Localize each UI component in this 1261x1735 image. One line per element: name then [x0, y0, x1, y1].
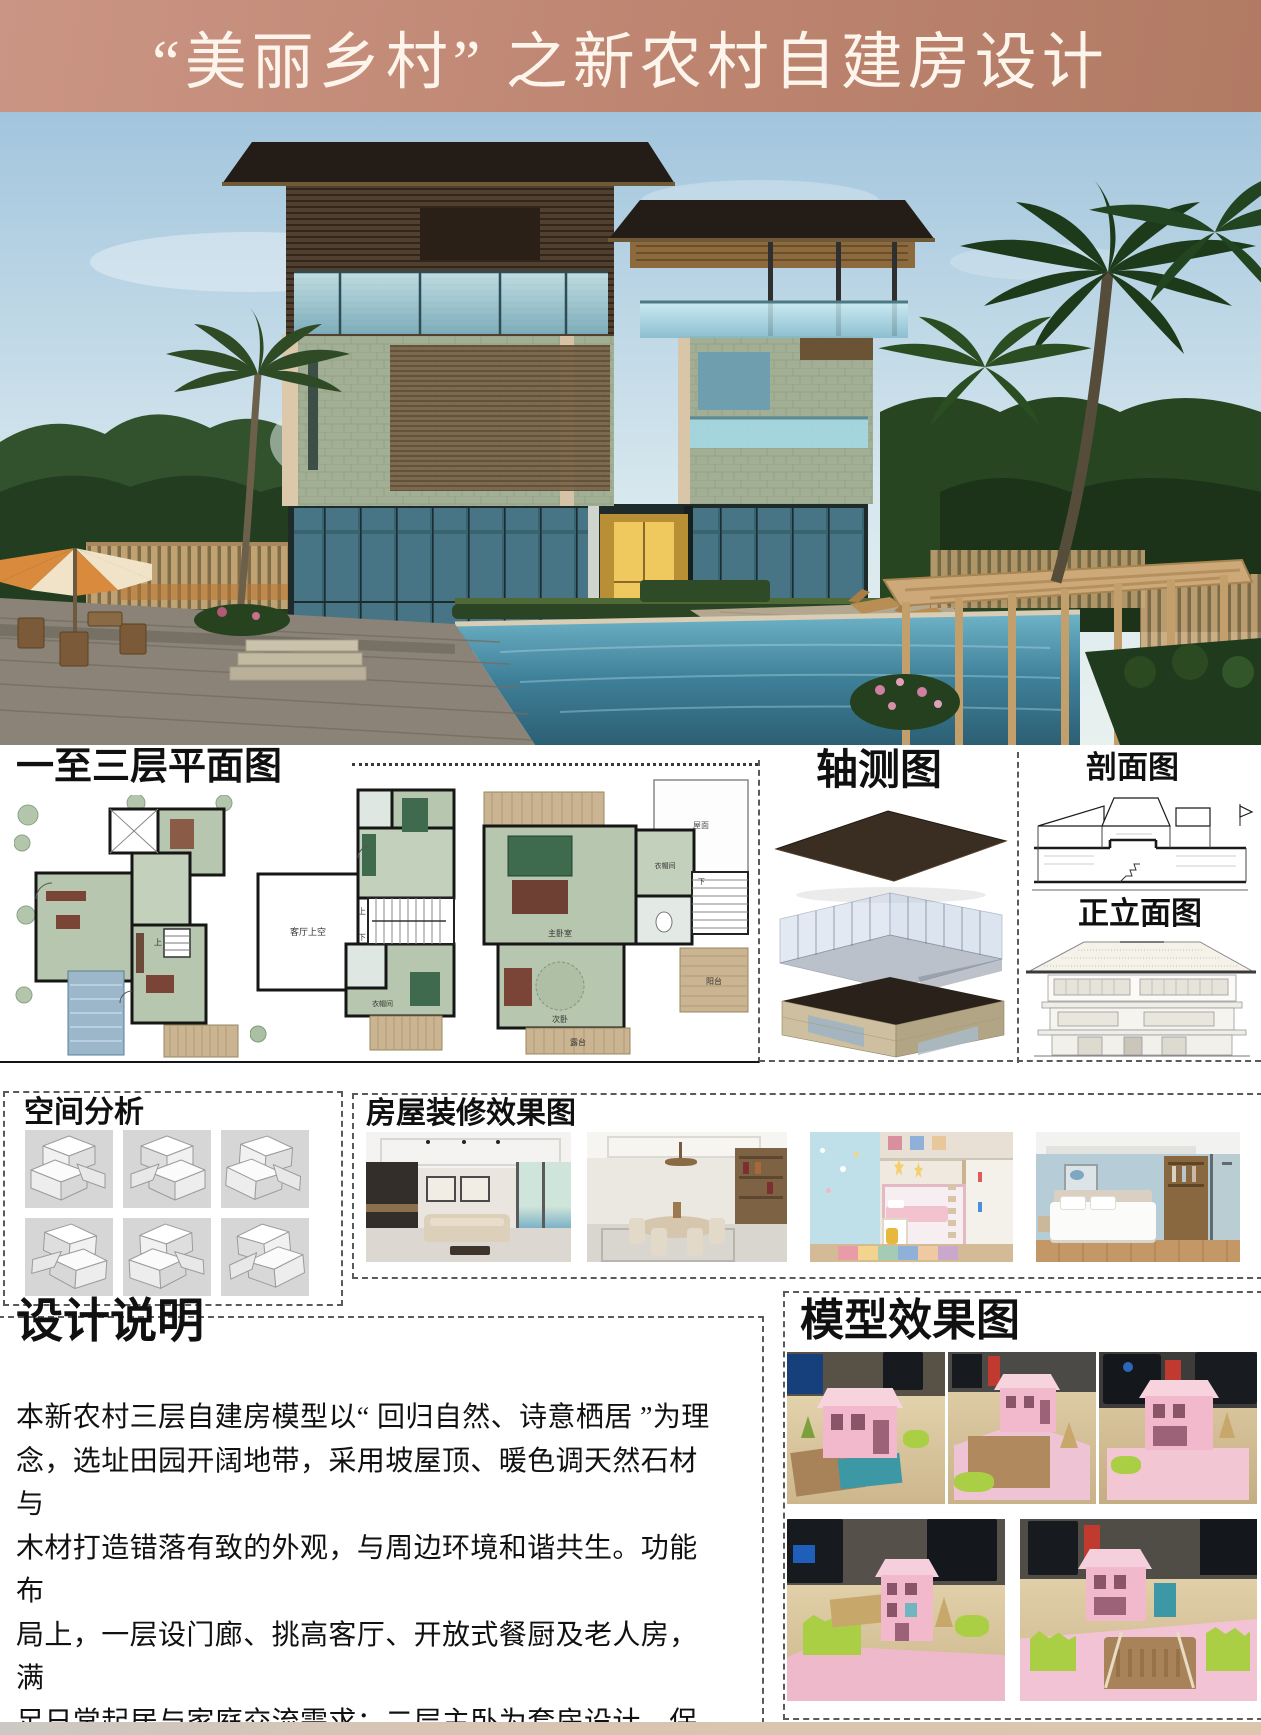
- massing-thumb-1: [25, 1130, 113, 1208]
- interior-renderings-title: 房屋装修效果图: [366, 1098, 576, 1130]
- axonometric-title: 轴测图: [816, 748, 942, 792]
- model-photo-3: [1099, 1352, 1257, 1504]
- plan3-terrace-label: 露台: [570, 1037, 586, 1047]
- model-photo-1: [787, 1352, 945, 1504]
- model-photo-2: [948, 1352, 1096, 1504]
- plan2-stair-up-label: 上: [358, 907, 366, 916]
- title-banner: “美丽乡村” 之新农村自建房设计: [0, 0, 1261, 112]
- massing-thumb-6: [221, 1218, 309, 1296]
- hero-roof-left: [222, 142, 675, 184]
- poster-root: “美丽乡村” 之新农村自建房设计: [0, 0, 1261, 1735]
- plan2-cloakroom-label: 衣帽间: [372, 999, 393, 1008]
- design-notes-body: 本新农村三层自建房模型以“ 回归自然、诗意栖居 ”为理 念，选址田园开阔地带，采…: [16, 1396, 722, 1735]
- hero-stone-steps: [230, 640, 366, 680]
- plan1-deck: [164, 1025, 238, 1057]
- section-view-title: 剖面图: [1086, 752, 1179, 785]
- divider-axon-section: [1017, 752, 1019, 1063]
- axonometric-exploded-view: [768, 795, 1012, 1059]
- plan2-stair-down-label: 下: [358, 933, 366, 942]
- plan3-stair-down-label: 下: [698, 878, 705, 886]
- poster-title: “美丽乡村” 之新农村自建房设计: [152, 11, 1109, 101]
- model-photo-4: [787, 1519, 1005, 1701]
- floor-plan-level1: 上: [14, 795, 244, 1061]
- hero-pool: [455, 612, 1080, 745]
- interior-photo-dining-room: [587, 1132, 787, 1262]
- elevation-drawing: [1024, 936, 1258, 1058]
- massing-thumb-3: [221, 1130, 309, 1208]
- model-photos-title: 模型效果图: [800, 1298, 1020, 1344]
- interior-photo-bedroom: [1036, 1132, 1240, 1262]
- space-analysis-title: 空间分析: [24, 1097, 144, 1129]
- axon-glass-storey: [780, 893, 1002, 991]
- hero-house: [222, 142, 935, 650]
- axon-bottom-dashed-rule: [759, 1060, 1261, 1062]
- massing-thumb-5: [123, 1218, 211, 1296]
- model-photo-5: [1020, 1519, 1257, 1701]
- floor-plan-level2: 客厅上空 上 下 衣帽间: [250, 782, 464, 1060]
- plan3-master-label: 主卧室: [548, 928, 572, 938]
- section-drawing: [1024, 790, 1256, 894]
- floor-plan-level3: 屋面 主卧室 衣帽间 下 阳台 露台 次卧: [468, 772, 756, 1060]
- plan3-second-bedroom-label: 次卧: [552, 1014, 568, 1024]
- divider-plans-axon: [758, 760, 760, 1063]
- hero-flowers: [850, 674, 960, 730]
- plan2-void-label: 客厅上空: [290, 926, 326, 937]
- floor-plans-dotted-rule: [352, 763, 758, 766]
- massing-thumb-4: [25, 1218, 113, 1296]
- hero-rendering-image: [0, 112, 1261, 745]
- plan3-balcony-label: 阳台: [706, 976, 722, 986]
- plans-bottom-rule: [0, 1061, 759, 1063]
- hero-roof-right: [608, 200, 935, 240]
- floor-plans-title: 一至三层平面图: [16, 748, 282, 788]
- design-notes-title: 设计说明: [16, 1296, 204, 1345]
- axon-stone-storey: [782, 977, 1004, 1057]
- elevation-title: 正立面图: [1078, 898, 1202, 931]
- plan3-cloakroom-label: 衣帽间: [655, 861, 676, 870]
- elevation-facade: [1038, 975, 1246, 1055]
- massing-thumb-2: [123, 1130, 211, 1208]
- plan2-balcony-deck: [370, 1016, 442, 1050]
- axon-roof: [776, 811, 1006, 903]
- footer-accent-bar: [0, 1722, 1261, 1735]
- interior-photo-living-room: [366, 1132, 571, 1262]
- section-roof-profile: [1038, 798, 1252, 826]
- interior-photo-kids-room: [810, 1132, 1013, 1262]
- elevation-roof: [1026, 942, 1256, 972]
- hero-palm-base-shrubs: [194, 604, 290, 636]
- plan1-stair-up-label: 上: [154, 938, 162, 947]
- section-floor-slabs: [1034, 840, 1246, 882]
